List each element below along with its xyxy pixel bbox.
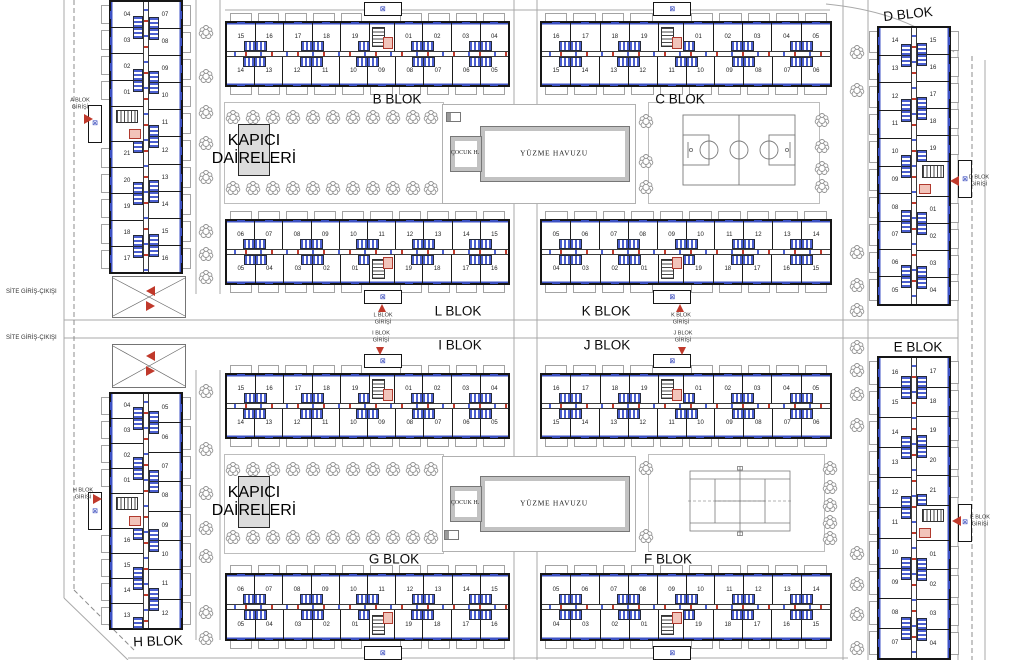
unit: 09 [149, 512, 181, 541]
balcony [101, 174, 109, 193]
unit-number: 10 [350, 68, 357, 74]
balcony [183, 140, 191, 161]
unit: 01 [917, 541, 949, 571]
balcony [602, 365, 624, 373]
balcony [805, 13, 827, 21]
unit-number: 15 [892, 400, 899, 406]
balcony [691, 13, 713, 21]
block-J: 16171819⊠010203040515141312111009080706 [540, 364, 832, 448]
unit-number: 18 [724, 266, 731, 272]
unit: 08 [744, 409, 773, 437]
unit: 14 [802, 221, 830, 249]
tree-icon [365, 109, 381, 125]
unit-col: 16151413121110090807 [879, 358, 911, 658]
unit-row: 06070809101112131415 [227, 575, 508, 604]
window-mark [668, 84, 676, 86]
unit-number: 02 [434, 386, 441, 392]
unit-number: 09 [668, 232, 675, 238]
entrance-label-J: J BLOKGİRİŞİ [674, 330, 693, 343]
balcony [341, 365, 363, 373]
site-entry-exit-label: SİTE GİRİŞ-ÇIKIŞI [6, 289, 57, 295]
balcony [951, 361, 959, 384]
unit: 01 [341, 610, 370, 639]
window-mark [462, 374, 470, 376]
unit-number: 12 [892, 94, 899, 100]
unit-number: 11 [892, 520, 898, 526]
balcony [748, 641, 770, 649]
unit-number: 11 [668, 68, 674, 74]
unit: 01 [341, 255, 370, 283]
tree-icon [814, 112, 830, 128]
window-mark [322, 374, 330, 376]
unit-number: 15 [553, 420, 560, 426]
window-mark [948, 91, 950, 99]
wet-core [422, 610, 434, 620]
unit: 14 [453, 575, 481, 604]
unit-number: 16 [266, 386, 273, 392]
unit-number: 19 [352, 34, 359, 40]
unit-col: 04030201⊠16151413 [111, 394, 143, 628]
window-mark [180, 492, 182, 500]
unit-number: 13 [162, 175, 169, 181]
unit-number: 17 [754, 622, 761, 628]
unit-number: 11 [378, 232, 384, 238]
stairs-icon [922, 509, 944, 522]
wet-core [801, 255, 813, 265]
balcony [286, 439, 308, 447]
tree-icon [814, 160, 830, 176]
balcony [719, 285, 741, 293]
unit: 18 [714, 610, 743, 639]
elevator-icon: ⊠ [669, 650, 675, 657]
window-mark [878, 519, 880, 527]
wet-core [628, 409, 640, 419]
unit-number: 06 [582, 232, 589, 238]
window-mark [294, 22, 302, 24]
wet-core [570, 239, 582, 249]
window-mark [110, 11, 112, 19]
unit: 02 [423, 375, 452, 403]
balcony [951, 575, 959, 598]
unit-row: 04030201⊠1918171615 [542, 255, 830, 283]
balcony [101, 148, 109, 167]
unit-number: 17 [582, 34, 589, 40]
wet-core [628, 594, 640, 604]
unit: 06 [571, 221, 600, 249]
wet-core [801, 393, 813, 403]
stair-core: ⊠ [370, 23, 395, 51]
building-slab: 1516171819⊠0102030414131211100908070605 [225, 21, 510, 87]
unit-number: 03 [462, 34, 469, 40]
tree-icon [849, 82, 865, 98]
balcony [869, 224, 877, 246]
block-F: 0506070809101112131404030201⊠1918171615 [540, 564, 832, 650]
unit: 04 [542, 255, 571, 283]
balcony [691, 641, 713, 649]
window-mark [581, 638, 589, 640]
unit-number: 15 [553, 68, 560, 74]
window-mark [490, 282, 498, 284]
unit: 06 [802, 409, 830, 437]
tree-icon [198, 135, 214, 151]
unit: 04 [917, 630, 949, 659]
unit: 14 [111, 579, 143, 604]
unit-number: 07 [784, 68, 791, 74]
unit: 06 [227, 575, 255, 604]
balcony [314, 439, 336, 447]
unit-number: 14 [463, 232, 470, 238]
entrance-label-line1: I BLOK [372, 330, 390, 337]
window-mark [180, 610, 182, 618]
balcony [400, 285, 422, 293]
balcony [545, 211, 568, 219]
unit: 17 [917, 358, 949, 388]
unit-number: 06 [892, 260, 899, 266]
unit-number: 09 [378, 68, 385, 74]
wet-core [683, 393, 695, 403]
unit-number: 03 [754, 386, 761, 392]
balcony-row [227, 564, 508, 573]
block-H: 04030201⊠161514130506070809101112 [100, 392, 192, 630]
window-mark [640, 22, 648, 24]
window-mark [180, 522, 182, 530]
window-mark [581, 84, 589, 86]
window-mark [265, 84, 273, 86]
entrance-label-L: L BLOKGİRİŞİ [373, 312, 392, 325]
balcony [101, 559, 109, 577]
balcony [718, 439, 741, 447]
balcony [101, 397, 109, 415]
unit-number: 03 [754, 34, 761, 40]
tree-icon [849, 417, 865, 433]
unit-number: 05 [553, 587, 560, 593]
window-mark [180, 147, 182, 155]
site-entry-arrow [146, 351, 155, 361]
balcony [285, 13, 307, 21]
entrance-arrow-E [952, 516, 961, 526]
window-mark [434, 220, 442, 222]
unit: 14 [227, 409, 255, 437]
wet-core [629, 255, 641, 265]
unit: 18 [423, 255, 452, 283]
window-mark [180, 255, 182, 263]
unit: 03 [571, 610, 600, 639]
unit-number: 04 [783, 386, 790, 392]
window-mark [180, 174, 182, 182]
unit: 01 [917, 197, 949, 224]
unit: 19 [341, 23, 370, 51]
unit: 03 [284, 610, 313, 639]
window-mark [293, 574, 301, 576]
balcony [869, 114, 877, 136]
wet-core [312, 41, 324, 51]
balcony [869, 86, 877, 108]
caretaker-label-line2: DAİRELERİ [212, 150, 296, 168]
unit: 08 [283, 221, 311, 249]
wet-core [149, 422, 159, 434]
unit-number: 16 [491, 266, 498, 272]
core-entrance: ⊠ [364, 646, 402, 660]
wet-core [133, 578, 143, 590]
balcony [804, 87, 827, 95]
wet-core [901, 507, 911, 519]
balcony [951, 546, 959, 569]
wet-core [743, 57, 755, 67]
tree-icon [325, 529, 341, 545]
unit: 10 [687, 409, 716, 437]
unit: 11 [715, 575, 744, 604]
unit-number: 01 [641, 266, 648, 272]
unit: 11 [149, 570, 181, 599]
window-mark [639, 436, 647, 438]
window-mark [639, 220, 647, 222]
unit: 09 [658, 221, 687, 249]
balcony [631, 87, 654, 95]
unit-number: 15 [237, 386, 244, 392]
unit: 10 [149, 541, 181, 570]
window-mark [753, 22, 761, 24]
entrance-label-K: K BLOKGİRİŞİ [671, 312, 691, 325]
balcony [483, 13, 505, 21]
unit: 19 [630, 23, 659, 51]
tree-icon [405, 529, 421, 545]
window-mark [406, 436, 414, 438]
window-mark [180, 65, 182, 73]
wet-core [480, 393, 492, 403]
elevator-icon: ⊠ [380, 650, 386, 657]
unit-number: 03 [582, 622, 589, 628]
tree-icon [345, 180, 361, 196]
unit-number: 05 [491, 420, 498, 426]
unit: 04 [481, 375, 509, 403]
wet-core [367, 409, 379, 419]
unit-number: 01 [641, 622, 648, 628]
unit-number: 12 [755, 587, 762, 593]
window-mark [948, 487, 950, 495]
balcony [545, 87, 568, 95]
wet-core [358, 610, 370, 620]
tree-icon [265, 180, 281, 196]
stair-core: ⊠ [659, 610, 684, 639]
unit-number: 09 [892, 580, 899, 586]
tree-icon [849, 545, 865, 561]
building-slab: 1516171819⊠0102030414131211100908070605 [225, 373, 510, 439]
window-mark [948, 145, 950, 153]
window-mark [351, 22, 359, 24]
tree-icon [814, 178, 830, 194]
balcony-col [868, 358, 877, 658]
stair-core: ⊠ [111, 494, 143, 529]
unit-number: 19 [352, 386, 359, 392]
elevator-icon: ⊠ [669, 6, 675, 13]
unit-number: 04 [553, 622, 560, 628]
unit: 05 [542, 575, 571, 604]
unit: 15 [481, 221, 508, 249]
balcony [455, 565, 477, 573]
balcony-row [227, 210, 508, 219]
elevator [383, 37, 393, 49]
unit: 03 [743, 23, 772, 51]
balcony [427, 211, 449, 219]
balcony [101, 445, 109, 463]
unit: 14 [802, 575, 830, 604]
window-mark [782, 638, 790, 640]
wet-core [570, 393, 582, 403]
unit: 18 [917, 388, 949, 418]
window-mark [110, 537, 112, 545]
window-mark [725, 436, 733, 438]
window-mark [180, 92, 182, 100]
unit: 13 [424, 221, 452, 249]
building-slab: 16171819⊠010203040515141312111009080706 [540, 21, 832, 87]
balcony [602, 285, 624, 293]
unit-number: 20 [930, 458, 937, 464]
wet-core [480, 610, 492, 620]
unit-number: 13 [892, 460, 899, 466]
wet-core [683, 610, 695, 620]
unit-number: 01 [124, 90, 131, 96]
window-mark [265, 374, 273, 376]
unit: 06 [453, 57, 481, 85]
tree-icon [265, 529, 281, 545]
unit: 07 [879, 222, 911, 250]
unit: 02 [423, 23, 452, 51]
window-mark [462, 84, 470, 86]
block-label-K: K BLOK [582, 304, 631, 319]
window-mark [948, 551, 950, 559]
tree-icon [305, 529, 321, 545]
window-mark [490, 574, 498, 576]
unit: 18 [111, 221, 143, 247]
balcony [869, 31, 877, 53]
wet-core [570, 610, 582, 620]
balcony [258, 285, 280, 293]
unit: 08 [149, 29, 181, 56]
unit: 16 [256, 375, 285, 403]
unit: 14 [571, 409, 600, 437]
wet-core [917, 108, 927, 120]
window-mark [581, 574, 589, 576]
balcony [456, 285, 478, 293]
wet-core [686, 409, 698, 419]
unit: 09 [879, 167, 911, 195]
unit: 03 [452, 23, 481, 51]
core-entrance: ⊠ [653, 290, 691, 304]
unit: 12 [879, 478, 911, 508]
unit-number: 16 [930, 65, 937, 71]
tree-icon [198, 24, 214, 40]
unit: 17 [917, 82, 949, 109]
unit-number: 14 [237, 420, 244, 426]
unit-number: 14 [237, 68, 244, 74]
tree-icon [814, 138, 830, 154]
window-mark [948, 640, 950, 648]
wet-core [742, 393, 754, 403]
unit: 06 [879, 250, 911, 278]
unit-number: 09 [668, 587, 675, 593]
unit: 02 [111, 54, 143, 80]
balcony [631, 211, 654, 219]
block-label-H: H BLOK [133, 633, 183, 650]
unit: 17 [284, 375, 313, 403]
window-mark [180, 404, 182, 412]
unit-number: 11 [668, 420, 674, 426]
unit: 12 [283, 57, 311, 85]
balcony [574, 439, 597, 447]
wet-core [801, 409, 813, 419]
wet-core [570, 41, 582, 51]
tree-icon [638, 460, 654, 476]
tree-icon [198, 604, 214, 620]
unit: 05 [227, 610, 256, 639]
unit-row: 14131211100908070605 [227, 409, 508, 437]
unit-number: 08 [162, 493, 169, 499]
site-entry-exit-label: SİTE GİRİŞ-ÇIKIŞI [6, 335, 57, 341]
balcony [428, 365, 450, 373]
unit-row: 16171819⊠0102030405 [542, 375, 830, 403]
wet-core [743, 594, 755, 604]
entrance-label-line1: A BLOK [70, 97, 90, 104]
caretaker-building: KAPICIDAİRELERİ [238, 124, 270, 176]
unit: 19 [917, 136, 949, 163]
unit-number: 01 [352, 622, 359, 628]
tennis-court [688, 466, 792, 536]
window-mark [490, 220, 498, 222]
unit: 11 [368, 575, 396, 604]
unit-row: 0504030201⊠19181716 [227, 255, 508, 283]
tree-icon [225, 461, 241, 477]
window-mark [668, 436, 676, 438]
unit-number: 03 [930, 261, 937, 267]
balcony [775, 211, 798, 219]
unit: 15 [111, 554, 143, 579]
unit-number: 01 [405, 34, 412, 40]
balcony [342, 211, 364, 219]
unit: 14 [227, 57, 255, 85]
window-mark [725, 574, 733, 576]
wet-core [901, 110, 911, 122]
wet-core [628, 239, 640, 249]
wet-core [917, 54, 927, 66]
unit: 16 [917, 55, 949, 82]
wet-core [801, 57, 813, 67]
window-mark [725, 220, 733, 222]
balcony [748, 285, 770, 293]
window-mark [581, 436, 589, 438]
window-mark [724, 638, 732, 640]
balcony [603, 565, 626, 573]
wet-core [254, 239, 266, 249]
balcony [603, 211, 626, 219]
window-mark [351, 374, 359, 376]
balcony [951, 604, 959, 627]
balcony [101, 607, 109, 625]
balcony [313, 641, 335, 649]
unit: 21 [917, 476, 949, 506]
unit-number: 02 [611, 622, 618, 628]
stairs-icon [116, 110, 138, 123]
window-mark [378, 574, 386, 576]
wet-core [149, 28, 159, 40]
window-mark [405, 282, 413, 284]
unit: 09 [149, 56, 181, 83]
unit: 15 [227, 23, 256, 51]
unit-number: 07 [610, 232, 617, 238]
balcony [719, 641, 741, 649]
balcony [483, 439, 505, 447]
unit: 10 [340, 409, 368, 437]
balcony [183, 248, 191, 269]
